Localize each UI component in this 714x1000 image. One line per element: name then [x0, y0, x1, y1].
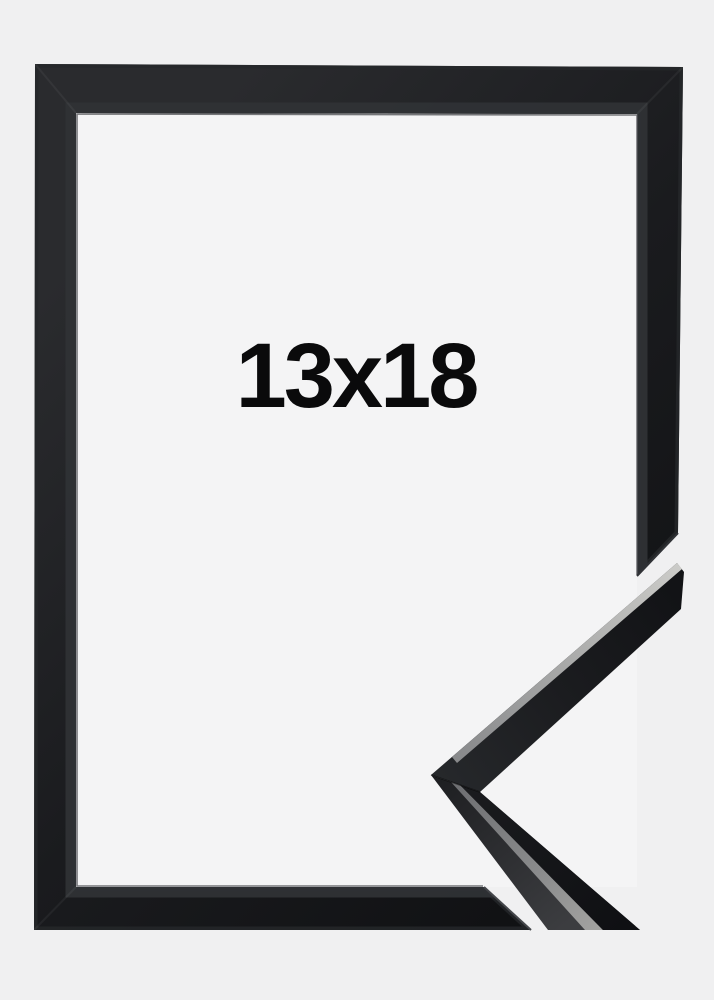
frame-opening	[76, 113, 637, 887]
size-label: 13x18	[236, 325, 478, 427]
product-image: 13x18	[0, 0, 714, 1000]
picture-frame-photo: 13x18	[0, 0, 714, 1000]
